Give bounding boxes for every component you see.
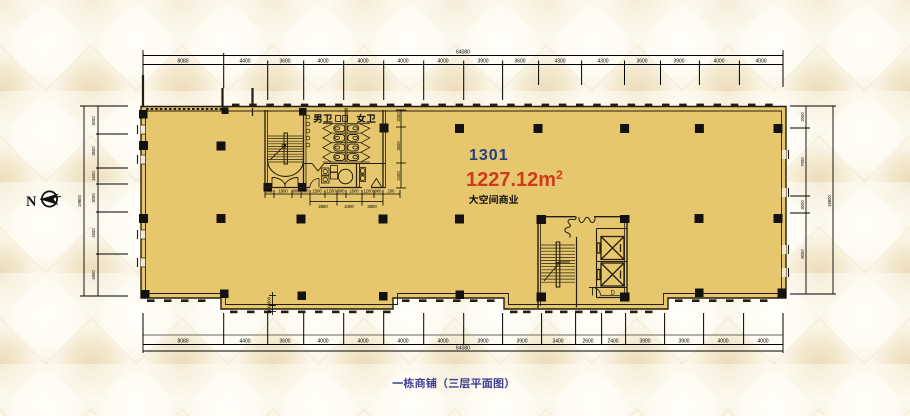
svg-text:1227.12m2: 1227.12m2 [466,168,563,191]
svg-text:64080: 64080 [456,346,470,352]
svg-text:8080: 8080 [177,59,188,65]
svg-text:1500: 1500 [312,189,322,194]
svg-text:19800: 19800 [827,195,832,207]
svg-text:2400: 2400 [344,204,354,209]
svg-text:4400: 4400 [239,339,250,345]
svg-text:2400: 2400 [607,339,618,345]
svg-text:3900: 3900 [477,339,488,345]
svg-text:3600: 3600 [279,59,290,65]
svg-text:7000: 7000 [800,157,805,167]
svg-text:3900: 3900 [516,339,527,345]
svg-text:200: 200 [388,189,396,194]
svg-text:D: D [611,291,616,297]
svg-text:4000: 4000 [437,59,448,65]
svg-text:4300: 4300 [554,59,565,65]
svg-text:4000: 4000 [437,339,448,345]
svg-text:4000: 4000 [713,59,724,65]
svg-text:1200: 1200 [363,189,373,194]
svg-text:3900: 3900 [639,339,650,345]
svg-text:3400: 3400 [552,339,563,345]
svg-text:900: 900 [293,189,301,194]
svg-text:4000: 4000 [317,339,328,345]
svg-text:8080: 8080 [177,339,188,345]
svg-text:1600: 1600 [349,189,359,194]
svg-text:1650: 1650 [91,171,96,181]
svg-text:3600: 3600 [91,146,96,156]
svg-text:19800: 19800 [77,195,82,207]
svg-text:900: 900 [266,189,274,194]
svg-text:3900: 3900 [673,59,684,65]
svg-text:2000: 2000 [396,112,401,122]
svg-text:1200: 1200 [326,189,336,194]
svg-text:2000: 2000 [800,112,805,122]
svg-text:4000: 4000 [357,339,368,345]
svg-text:2600: 2600 [582,339,593,345]
svg-text:N: N [26,194,37,210]
svg-text:2800: 2800 [367,204,377,209]
svg-text:64080: 64080 [456,50,470,56]
svg-text:3600: 3600 [636,59,647,65]
svg-text:4800: 4800 [91,270,96,280]
svg-text:1301: 1301 [469,147,509,164]
svg-text:3900: 3900 [477,59,488,65]
svg-text:4000: 4000 [757,339,768,345]
svg-text:900: 900 [338,189,346,194]
svg-text:4000: 4000 [397,59,408,65]
svg-text:3000: 3000 [91,116,96,126]
svg-text:2800: 2800 [318,204,328,209]
svg-text:900: 900 [302,189,310,194]
svg-text:900: 900 [375,189,383,194]
svg-text:4000: 4000 [357,59,368,65]
svg-text:3000: 3000 [800,200,805,210]
svg-text:4500: 4500 [91,228,96,238]
svg-text:3600: 3600 [514,59,525,65]
svg-text:900: 900 [267,296,272,304]
svg-text:4000: 4000 [755,59,766,65]
svg-text:4000: 4000 [717,339,728,345]
svg-text:3600: 3600 [279,339,290,345]
svg-text:3900: 3900 [678,339,689,345]
svg-text:4000: 4000 [397,339,408,345]
svg-text:8000: 8000 [800,249,805,259]
svg-text:3600: 3600 [396,141,401,151]
svg-text:4400: 4400 [239,59,250,65]
svg-text:300: 300 [267,304,272,312]
svg-text:4300: 4300 [597,59,608,65]
svg-text:2400: 2400 [396,171,401,181]
svg-text:1800: 1800 [278,189,288,194]
svg-text:3000: 3000 [91,193,96,203]
svg-text:4000: 4000 [317,59,328,65]
